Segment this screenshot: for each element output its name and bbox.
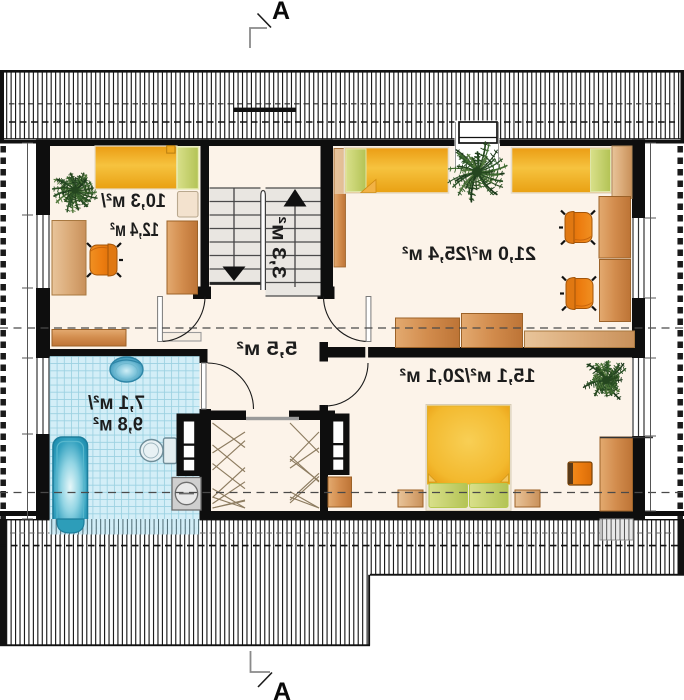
svg-text:3,3 м²: 3,3 м² — [268, 217, 289, 279]
svg-text:12,4 м²: 12,4 м² — [110, 220, 159, 241]
svg-text:7,1 м²/: 7,1 м²/ — [87, 393, 145, 414]
svg-text:10,3 м²/: 10,3 м²/ — [100, 191, 166, 212]
svg-text:21,0 м²/25,4 м²: 21,0 м²/25,4 м² — [402, 244, 536, 265]
svg-text:A: A — [273, 678, 291, 700]
svg-text:9,8 м²: 9,8 м² — [93, 415, 143, 436]
svg-text:15,1 м²/20,1 м²: 15,1 м²/20,1 м² — [400, 366, 536, 387]
svg-text:A: A — [272, 0, 290, 25]
svg-text:5,5 м²: 5,5 м² — [237, 339, 298, 360]
